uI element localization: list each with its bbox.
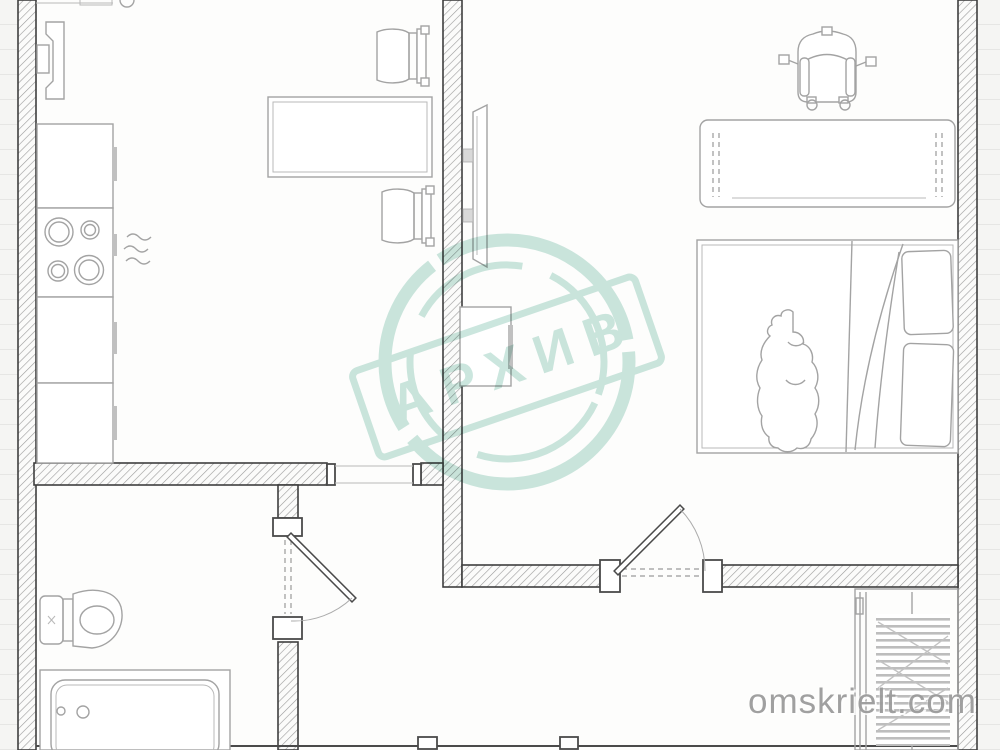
nightstand — [460, 307, 513, 386]
wardrobe-rail-stripes — [876, 614, 950, 746]
desk-area — [268, 26, 434, 246]
site-watermark: omskrielt.com — [748, 682, 977, 722]
entrance-jamb-left — [418, 737, 437, 749]
bathroom — [40, 590, 230, 750]
wardrobe — [855, 589, 958, 750]
double-bed — [697, 240, 958, 453]
bathtub — [40, 670, 230, 750]
chair — [377, 26, 429, 86]
center-wall — [443, 0, 462, 587]
entrance-jamb-right — [560, 737, 578, 749]
room-bottom-wall-right — [722, 565, 958, 587]
pillow — [902, 250, 954, 335]
bathroom-door — [273, 518, 352, 639]
cabinet-handle — [112, 406, 117, 440]
kitchen-counter — [37, 124, 113, 208]
living-room-door — [600, 509, 722, 592]
chair — [382, 186, 434, 246]
sink-wall-bracket — [37, 45, 49, 73]
cabinet-handle — [112, 322, 117, 354]
right-wall — [958, 0, 977, 750]
kitchen-counter — [37, 297, 113, 383]
bedroom — [460, 27, 958, 453]
room-bottom-wall-left — [462, 565, 600, 587]
floorplan-page: АРХИВ omskrielt.com — [0, 0, 1000, 750]
desk — [268, 97, 432, 177]
kitchen — [37, 22, 151, 463]
heat-waves-icon — [124, 234, 151, 264]
toilet — [40, 590, 122, 648]
hall-top-wall — [34, 463, 327, 485]
cabinet-handle — [112, 147, 117, 181]
top-cutoff-knob — [120, 0, 134, 7]
hall-top-wall-stub — [421, 463, 443, 485]
bathroom-wall-upper — [278, 485, 298, 518]
wall-tv — [463, 105, 487, 267]
left-wall — [18, 0, 36, 750]
baby-stroller — [779, 27, 876, 110]
floorplan-drawing — [0, 0, 1000, 750]
stove-unit — [37, 208, 113, 297]
dresser-bench — [700, 120, 955, 207]
kitchen-counter — [37, 383, 113, 463]
pillow — [900, 343, 954, 447]
cabinet-handle — [112, 234, 117, 256]
bathroom-wall-lower — [278, 642, 298, 750]
passage-jamb-left — [327, 464, 335, 485]
passage-jamb-right — [413, 464, 421, 485]
